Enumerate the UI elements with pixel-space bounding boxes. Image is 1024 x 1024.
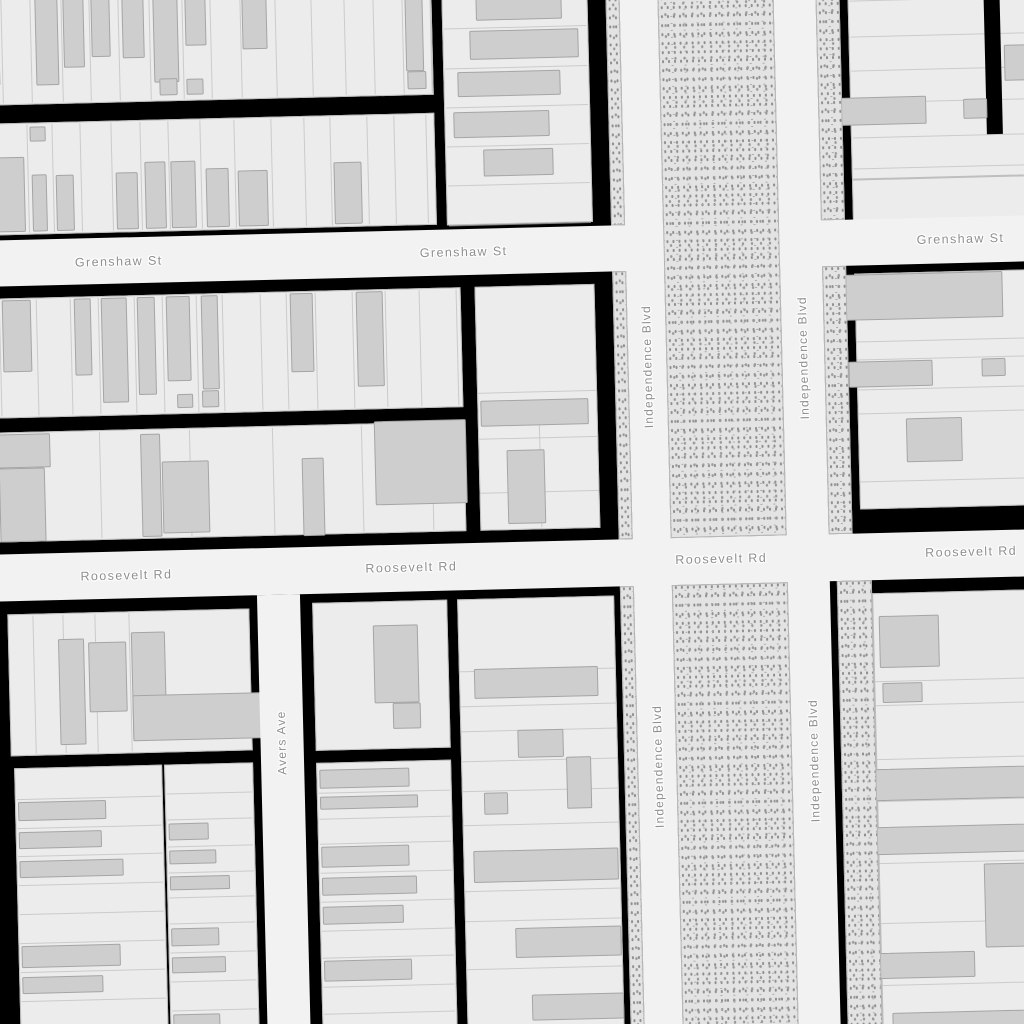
building (100, 297, 129, 402)
building (506, 449, 546, 524)
street-label-roosevelt: Roosevelt Rd (675, 551, 767, 567)
building (169, 850, 216, 865)
building (483, 148, 553, 177)
building (172, 956, 226, 974)
building (355, 291, 384, 387)
building (290, 293, 315, 372)
building (73, 298, 92, 376)
building (202, 390, 220, 407)
building (302, 458, 326, 537)
building (566, 756, 592, 809)
building (324, 959, 412, 982)
building (186, 79, 203, 95)
map-canvas: Grenshaw StGrenshaw StGrenshaw StRooseve… (0, 0, 1024, 1024)
building (374, 419, 468, 505)
building (170, 875, 231, 891)
building (402, 0, 424, 72)
building (879, 615, 940, 668)
street-label-grenshaw: Grenshaw St (420, 244, 508, 260)
building (132, 692, 266, 741)
building (31, 174, 47, 231)
boulevard-median (655, 0, 786, 538)
building (322, 875, 418, 896)
building (58, 638, 87, 745)
parcel-block (457, 596, 626, 1024)
street-label-roosevelt: Roosevelt Rd (365, 559, 457, 575)
building (32, 0, 59, 85)
building (373, 624, 420, 703)
building (963, 98, 987, 119)
building (60, 0, 85, 68)
building (88, 641, 128, 712)
building (334, 161, 363, 224)
street-label-grenshaw: Grenshaw St (916, 231, 1004, 247)
building (319, 767, 409, 788)
building (0, 467, 47, 542)
building (55, 175, 75, 232)
building (200, 295, 219, 389)
building (407, 71, 426, 89)
building (18, 800, 107, 821)
building (162, 460, 211, 533)
building (115, 172, 139, 230)
building (159, 78, 178, 96)
building (864, 764, 1024, 802)
building (173, 1013, 220, 1024)
building (454, 109, 550, 138)
building (480, 398, 589, 427)
building (171, 927, 220, 947)
street-label-independence: Independence Blvd (806, 699, 823, 822)
building (484, 792, 509, 815)
building (140, 434, 163, 537)
building (89, 0, 111, 57)
building (393, 702, 422, 729)
building (150, 0, 179, 82)
building (321, 845, 409, 868)
building (177, 393, 193, 408)
building (237, 170, 269, 226)
boulevard-median (672, 582, 800, 1024)
map-viewport[interactable]: Grenshaw StGrenshaw StGrenshaw StRooseve… (0, 0, 1024, 1024)
building (469, 29, 578, 60)
building (873, 951, 976, 979)
building (120, 0, 145, 58)
building (882, 682, 922, 703)
building (870, 822, 1024, 856)
building (145, 161, 168, 229)
building (1004, 44, 1024, 81)
building (171, 161, 197, 228)
building (474, 666, 599, 699)
building (515, 925, 622, 958)
road-avers (257, 594, 312, 1024)
street-label-avers: Avers Ave (274, 710, 290, 775)
street-label-independence: Independence Blvd (639, 305, 656, 428)
building (532, 992, 625, 1020)
building (205, 168, 230, 227)
building (457, 69, 561, 97)
building (30, 126, 46, 141)
building (0, 433, 51, 469)
building (1, 300, 32, 373)
building (19, 859, 123, 878)
building (165, 296, 191, 381)
building (137, 297, 157, 396)
building (840, 96, 927, 126)
building (0, 157, 26, 233)
building (169, 823, 210, 841)
building (19, 830, 103, 849)
building (240, 0, 268, 49)
building (323, 905, 404, 925)
building (984, 862, 1024, 947)
building (182, 0, 206, 46)
building (21, 944, 121, 968)
street-label-roosevelt: Roosevelt Rd (925, 544, 1017, 560)
building (517, 729, 564, 758)
street-label-independence: Independence Blvd (795, 296, 812, 419)
street-label-independence: Independence Blvd (650, 705, 667, 828)
building (906, 417, 963, 462)
building (320, 794, 418, 809)
building (473, 848, 619, 884)
building (22, 975, 103, 994)
building (981, 358, 1005, 377)
street-label-grenshaw: Grenshaw St (75, 253, 163, 269)
building (842, 271, 1003, 321)
parcel-block (164, 762, 262, 1024)
street-label-roosevelt: Roosevelt Rd (80, 567, 172, 583)
building (848, 360, 933, 388)
building (476, 0, 563, 21)
